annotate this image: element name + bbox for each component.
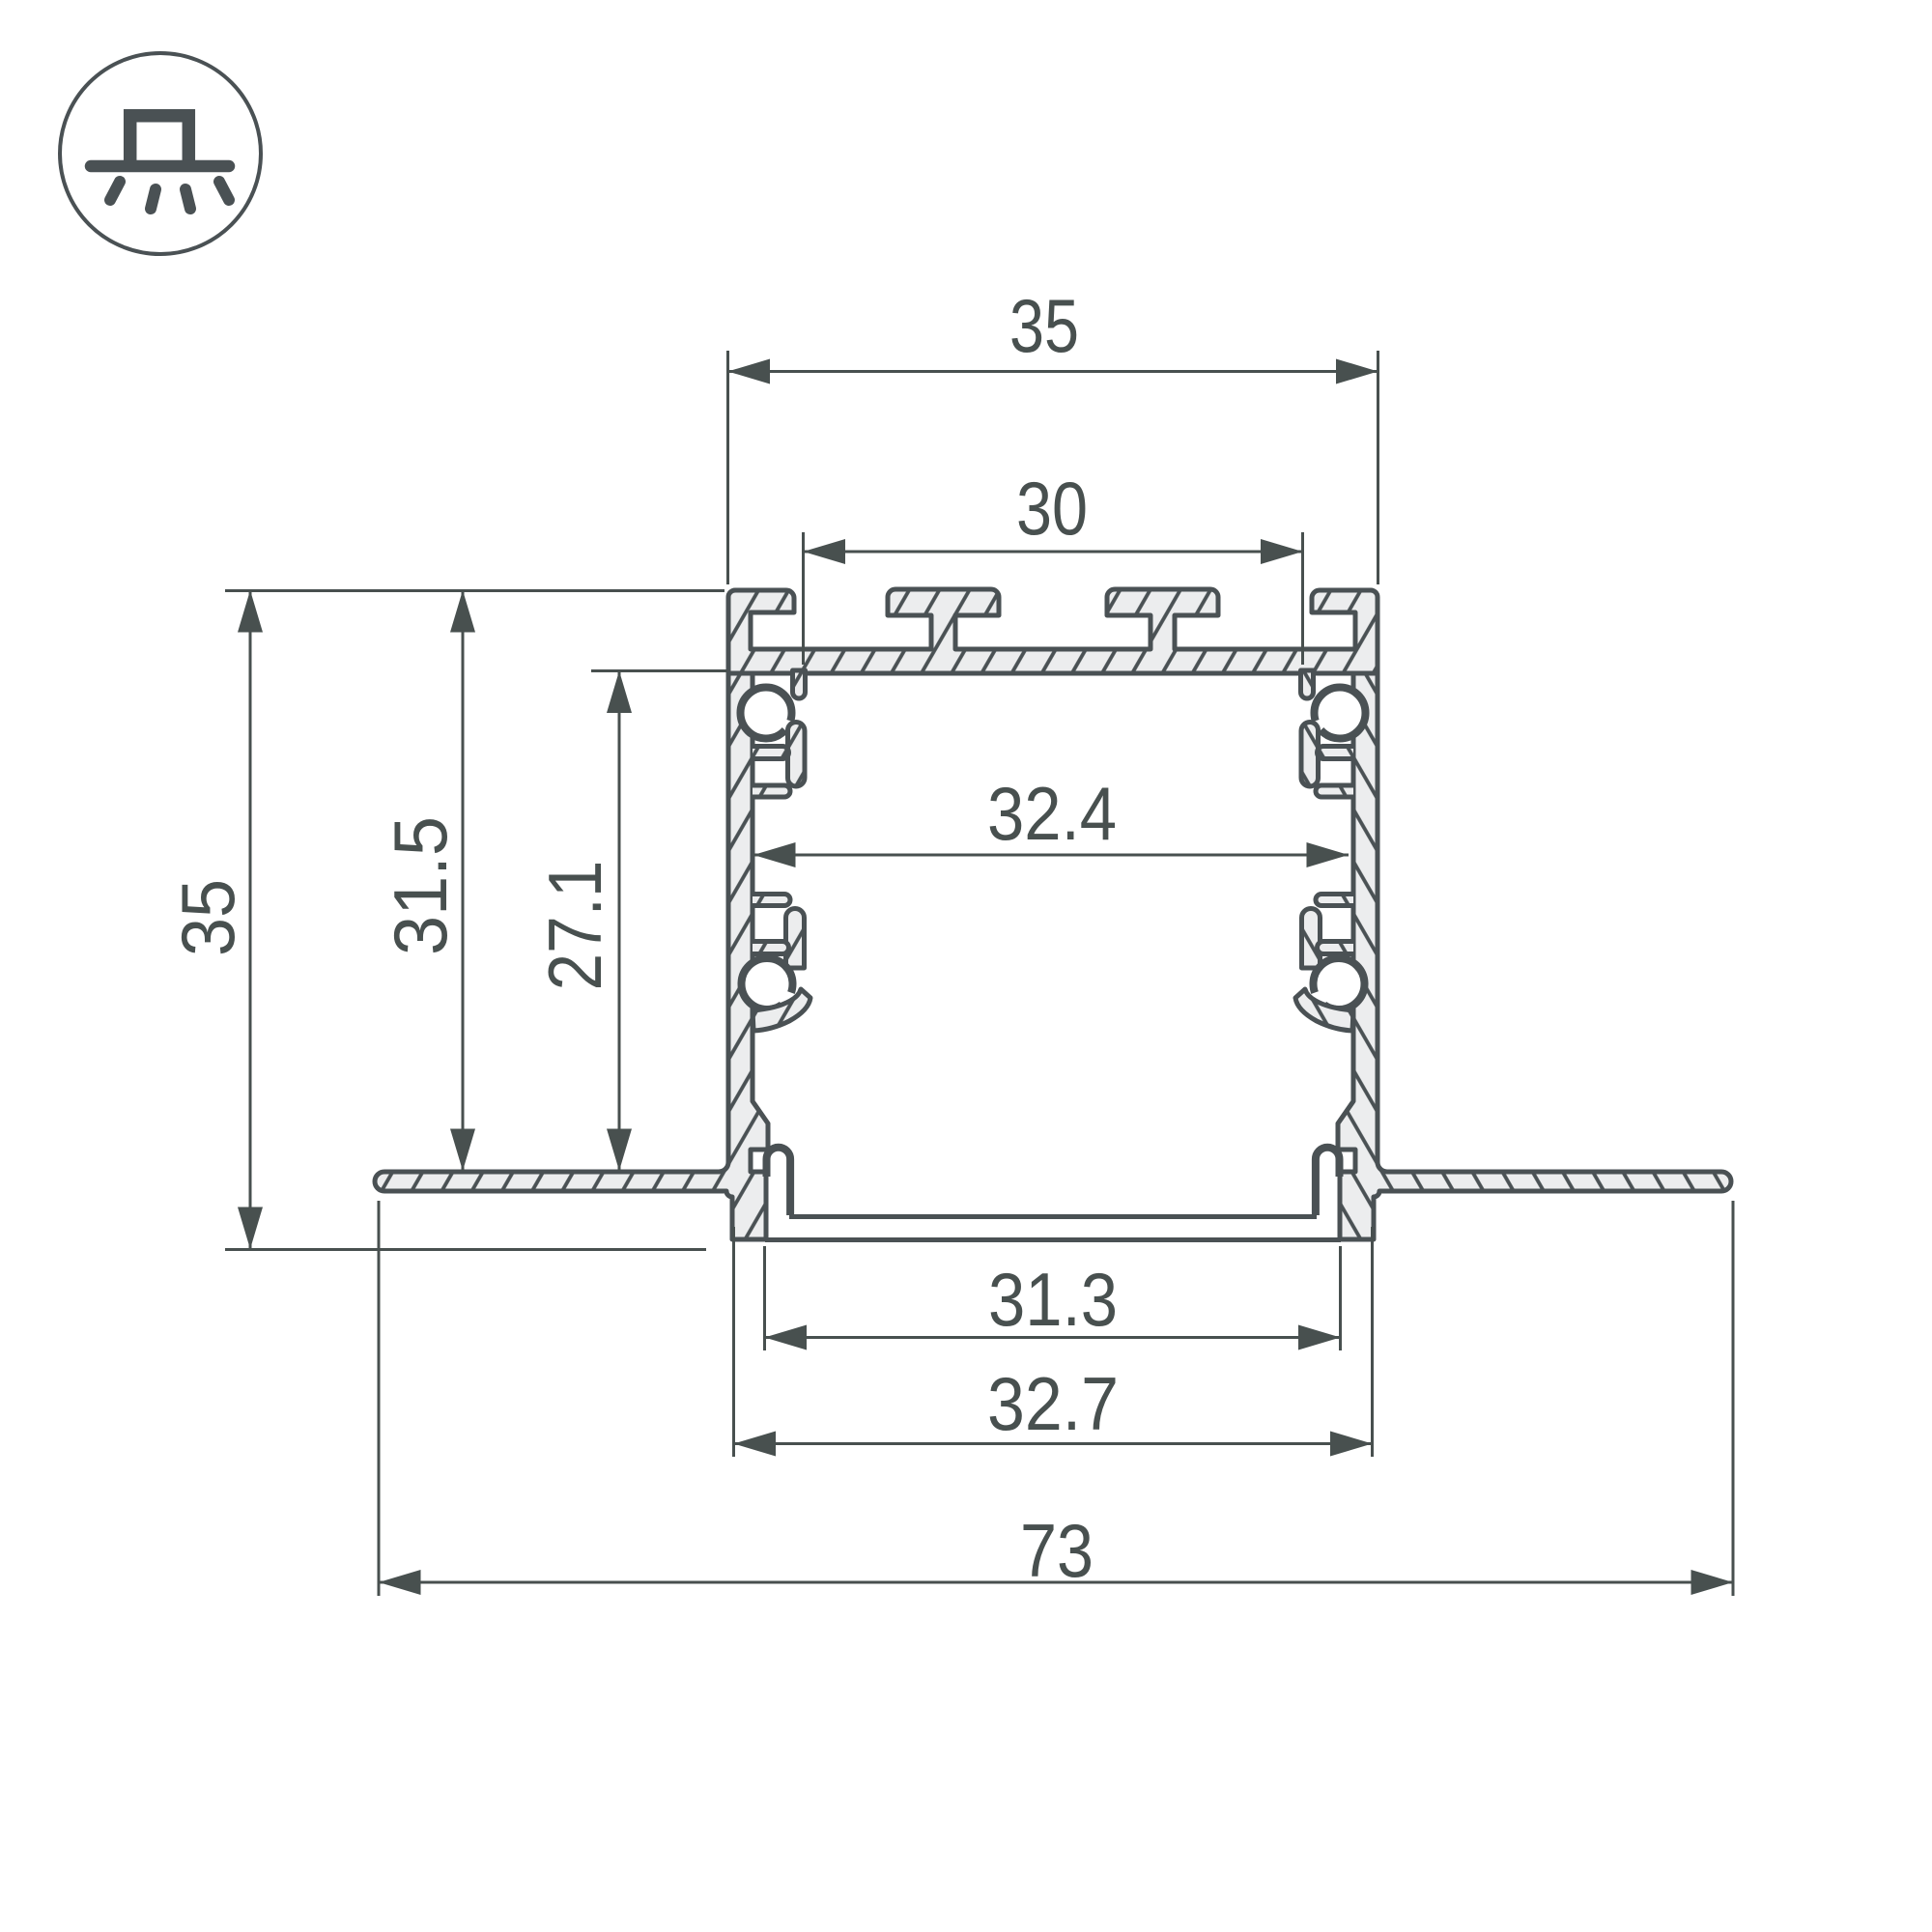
svg-text:35: 35 [165,879,250,956]
svg-text:31.5: 31.5 [378,816,463,955]
svg-text:30: 30 [1016,466,1088,551]
svg-text:31.3: 31.3 [988,1257,1118,1342]
svg-text:32.7: 32.7 [987,1361,1119,1446]
svg-text:27.1: 27.1 [532,861,617,991]
svg-text:35: 35 [1009,283,1079,368]
svg-text:32.4: 32.4 [987,771,1117,856]
svg-text:73: 73 [1020,1508,1094,1593]
